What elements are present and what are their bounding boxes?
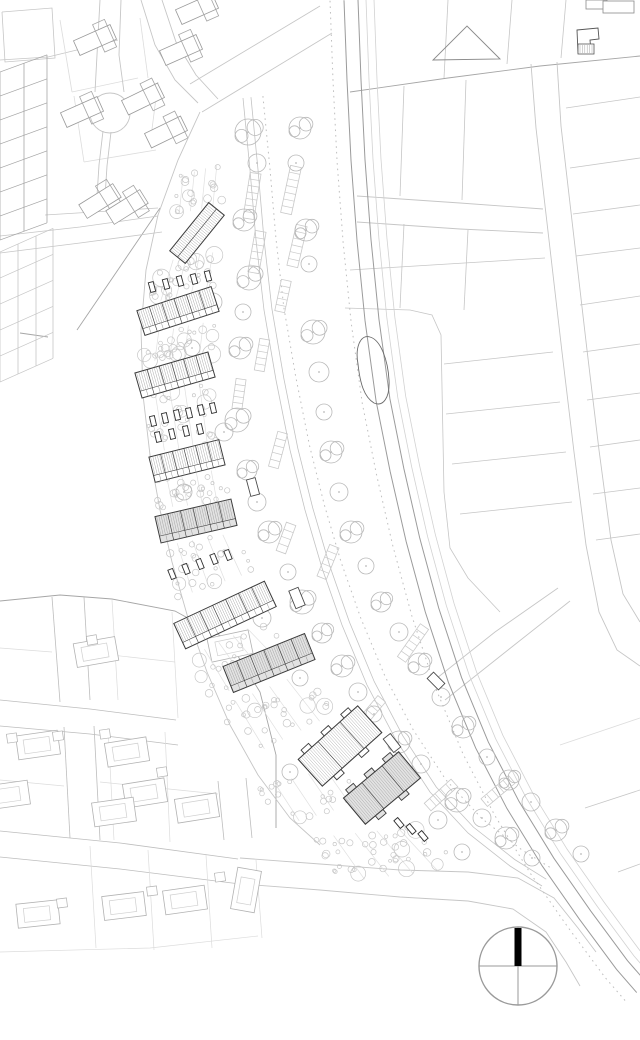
shed	[196, 424, 203, 435]
triangle-landmark	[433, 26, 500, 60]
parking-row	[269, 431, 288, 468]
parking-row	[424, 779, 457, 811]
annex-building	[246, 478, 259, 497]
shed	[168, 568, 176, 579]
tree	[340, 521, 364, 543]
tree	[408, 653, 432, 675]
tree	[280, 564, 296, 580]
tree	[292, 670, 308, 686]
parking-row	[281, 165, 302, 214]
shed	[154, 432, 161, 443]
tree	[331, 655, 355, 677]
tree	[288, 155, 304, 171]
garage	[214, 872, 225, 882]
shed	[418, 831, 428, 842]
house	[174, 793, 219, 823]
house	[118, 77, 167, 121]
house	[157, 28, 206, 72]
lot-grid	[0, 55, 47, 240]
house	[173, 0, 222, 31]
shed	[204, 271, 211, 282]
tree	[371, 592, 393, 612]
tree	[522, 793, 540, 811]
annex-building	[427, 672, 445, 690]
tree	[454, 844, 470, 860]
garage	[86, 635, 97, 646]
house	[102, 892, 147, 921]
garage	[6, 733, 17, 743]
shed	[209, 403, 216, 414]
left-lot-grids	[0, 55, 53, 382]
lot-grid	[0, 228, 53, 382]
tree	[445, 788, 471, 812]
shed	[168, 429, 175, 440]
street-trees	[176, 117, 589, 866]
tree	[282, 764, 298, 780]
sw-neighborhood	[0, 595, 276, 952]
apartment-buildings	[295, 702, 424, 828]
house	[16, 900, 60, 928]
tree	[573, 846, 589, 862]
main-road	[330, 0, 640, 1002]
tree	[301, 320, 327, 344]
row-house-building	[149, 440, 225, 483]
north-arrow	[479, 927, 557, 1005]
shed	[182, 426, 189, 437]
tree	[316, 404, 332, 420]
apartment-building	[340, 748, 423, 828]
garage	[99, 729, 110, 739]
shed	[149, 416, 156, 427]
annex-building	[289, 587, 305, 608]
tree	[545, 819, 569, 841]
tree	[215, 423, 233, 441]
tree	[358, 558, 374, 574]
house	[104, 737, 149, 767]
site-plan-page	[0, 0, 640, 1040]
parking-row	[275, 279, 291, 312]
tree	[473, 809, 491, 827]
tree	[330, 483, 348, 501]
tree	[295, 219, 319, 241]
shed	[406, 824, 416, 835]
tree	[499, 770, 521, 790]
tree	[429, 811, 447, 829]
garage	[146, 886, 157, 896]
shed	[224, 549, 232, 560]
shed	[162, 279, 169, 290]
parking-row	[287, 224, 307, 267]
tree	[229, 337, 253, 359]
row-house-building	[170, 203, 225, 264]
parking-row	[254, 338, 269, 371]
tree	[258, 521, 282, 543]
house	[231, 867, 262, 913]
tree	[301, 256, 317, 272]
house	[163, 885, 208, 915]
shed	[210, 553, 218, 564]
parking-row	[397, 624, 428, 663]
tree	[309, 362, 329, 382]
house	[0, 780, 30, 810]
tree	[320, 441, 344, 463]
tree	[349, 683, 367, 701]
tree	[479, 749, 495, 765]
garage	[156, 767, 167, 777]
row-house-building	[155, 499, 237, 543]
top-right-buildings	[577, 0, 634, 54]
garage	[52, 731, 63, 741]
secondary-roads	[190, 6, 640, 986]
parking-row	[232, 378, 246, 409]
development-strip	[135, 96, 589, 886]
tree	[235, 304, 251, 320]
site-plan	[0, 0, 640, 1040]
shed	[185, 408, 192, 419]
nw-neighborhood	[58, 0, 222, 230]
tree	[312, 623, 334, 643]
parking-row	[248, 230, 266, 273]
tree	[225, 408, 251, 432]
garage	[56, 898, 67, 908]
tree	[432, 688, 450, 706]
north-bar-icon	[515, 928, 522, 966]
tree	[237, 460, 259, 480]
row-buildings	[135, 203, 315, 693]
tree	[235, 119, 263, 145]
pond	[357, 337, 389, 404]
house	[141, 110, 190, 154]
shed	[196, 558, 204, 569]
shed	[176, 276, 183, 287]
shed	[190, 274, 197, 285]
tree	[390, 623, 408, 641]
shed	[394, 818, 404, 829]
tree	[184, 340, 200, 356]
shed	[161, 413, 168, 424]
tree	[289, 117, 313, 139]
house	[71, 18, 120, 62]
